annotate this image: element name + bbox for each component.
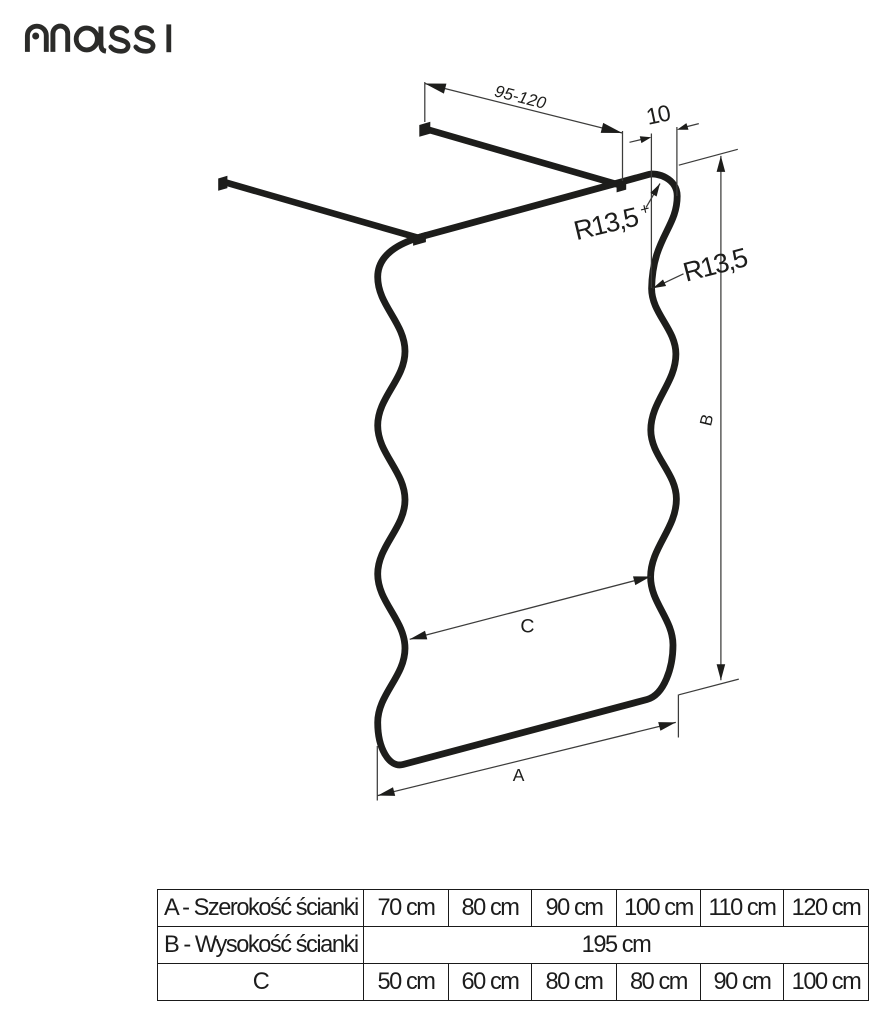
svg-text:R13,5: R13,5 (680, 242, 750, 287)
svg-text:95-120: 95-120 (493, 82, 549, 113)
svg-text:+: + (638, 200, 651, 219)
svg-text:R13,5: R13,5 (571, 202, 641, 246)
svg-text:C: C (520, 615, 534, 637)
svg-text:A: A (513, 765, 525, 785)
svg-text:B: B (696, 413, 717, 428)
svg-text:10: 10 (644, 99, 672, 129)
